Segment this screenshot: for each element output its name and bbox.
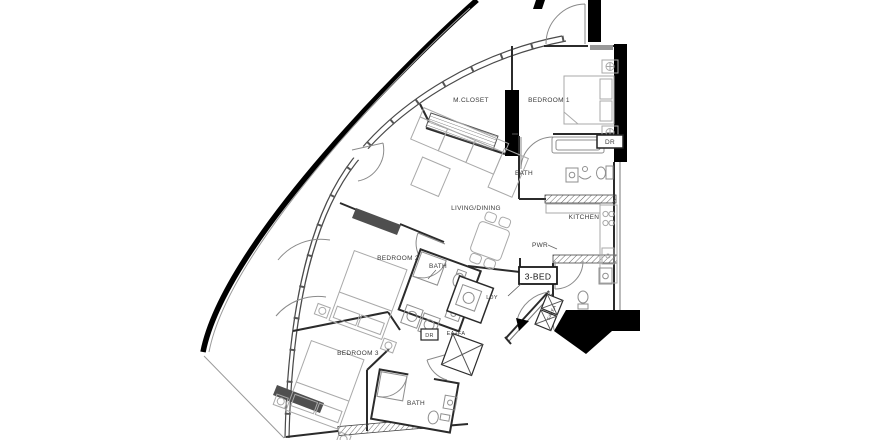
bathtub-icon xyxy=(552,137,604,153)
ea-fa-shaft xyxy=(441,334,482,376)
room-label-bedroom-1: BEDROOM 1 xyxy=(528,97,570,104)
floor-plan: DR xyxy=(0,0,890,440)
pwr-toilet-icon xyxy=(578,291,588,303)
window-sill xyxy=(590,45,613,50)
room-label-m-closet: M.CLOSET xyxy=(453,97,489,104)
room-label-bath-2: BATH xyxy=(429,263,447,270)
dryer-closet-bath2-label: DR xyxy=(425,333,434,339)
terrace-fan-bed2 xyxy=(278,239,330,260)
toilet-icon xyxy=(597,167,606,179)
room-label-bedroom-2: BEDROOM 2 xyxy=(377,255,419,262)
stove-icon xyxy=(603,211,608,216)
dryer-closet-master: DR xyxy=(597,135,623,148)
room-label-laundry: LDY xyxy=(486,295,498,301)
bedroom2-wardrobe xyxy=(352,208,401,235)
entry-arrow-icon xyxy=(516,318,529,331)
unit-tag-label: 3-BED xyxy=(525,272,552,282)
room-label-kitchen: KITCHEN xyxy=(569,214,600,221)
powder-room-fixtures xyxy=(578,268,612,309)
powder-room-door xyxy=(555,261,583,289)
entry-wall-mass xyxy=(554,310,640,354)
shower-icon xyxy=(583,167,588,172)
dining-table-icon xyxy=(466,210,514,271)
bedroom1-bed xyxy=(564,60,618,139)
pwr-sink-icon xyxy=(599,268,612,284)
room-label-master-bath: BATH xyxy=(515,170,533,177)
shaft-label-ea-fa: EA+FA xyxy=(447,331,466,337)
sink-icon xyxy=(566,168,578,182)
room-label-bath-3: BATH xyxy=(407,400,425,407)
dryer-closet-bath2: DR xyxy=(421,329,438,340)
party-wall-stub xyxy=(533,0,545,9)
room-label-living-dining: LIVING/DINING xyxy=(451,205,501,212)
dryer-closet-master-label: DR xyxy=(605,139,615,146)
room-label-powder: PWR xyxy=(532,242,548,249)
room-label-bedroom-3: BEDROOM 3 xyxy=(337,350,379,357)
